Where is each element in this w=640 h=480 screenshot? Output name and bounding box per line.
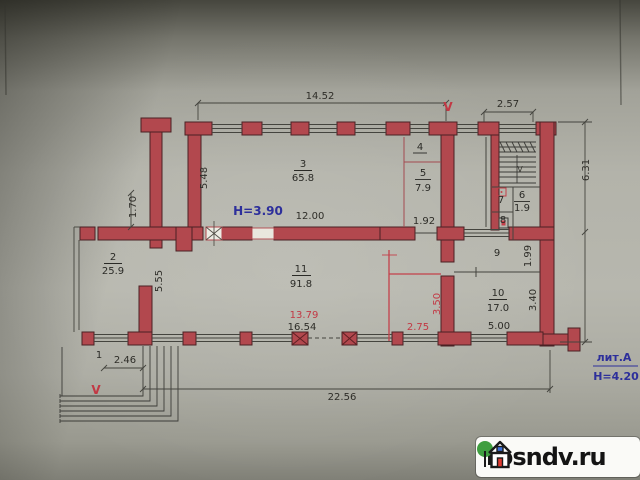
room5-area: 7.9 — [415, 183, 431, 194]
vent-box — [206, 221, 222, 246]
room11-number: 11 — [295, 264, 308, 275]
vent-mark-bottom: V — [91, 383, 101, 397]
room4-number: 4 — [417, 142, 423, 153]
walls-layer — [80, 118, 580, 351]
dim-inner-width: 16.54 — [288, 322, 317, 333]
dim-red-inner-width: 13.79 — [290, 310, 319, 321]
dim-porch-width: 2.46 — [114, 355, 136, 366]
dim-right-side: 6.31 — [581, 159, 592, 181]
room6-area: 1.9 — [514, 203, 530, 214]
room9-number: 9 — [494, 248, 500, 259]
room11-area: 91.8 — [290, 279, 312, 290]
ceiling-height-main: H=3.90 — [233, 204, 283, 218]
staircase — [499, 142, 536, 183]
dim-room3-height: 5.48 — [199, 167, 210, 189]
room6-number: 6 — [519, 190, 525, 201]
dim-left-offset: 1.70 — [128, 196, 139, 218]
room7-number: 7 — [498, 195, 504, 206]
dim-room5-width: 1.92 — [413, 216, 435, 227]
dimension-lines — [101, 100, 592, 393]
litera-label: лит.А — [597, 351, 632, 364]
wall-opening — [252, 228, 274, 239]
room3-number: 3 — [300, 159, 306, 170]
room1-number: 1 — [96, 350, 102, 361]
dim-stair-top: 2.57 — [497, 99, 519, 110]
vent-marks: V V — [91, 100, 453, 397]
room-label-fraction-lines — [104, 153, 530, 300]
room10-area: 17.0 — [487, 303, 509, 314]
room2-number: 2 — [110, 252, 116, 263]
stair-direction-mark: V — [517, 165, 523, 174]
dim-room9-height: 1.99 — [523, 245, 534, 267]
paper-creases — [5, 0, 621, 105]
dim-top: 14.52 — [306, 91, 335, 102]
dim-red-corridor-height: 3.50 — [432, 293, 443, 315]
dim-room2-height: 5.55 — [154, 270, 165, 292]
dim-room10-width: 5.00 — [488, 321, 510, 332]
room3-area: 65.8 — [292, 173, 314, 184]
room8-number: 8 — [500, 215, 506, 226]
floor-plan-photo: 14.52 2.57 6.31 5.48 1.70 12.00 1.92 5.5… — [0, 0, 640, 480]
ceiling-height-lower: H=4.20 — [593, 370, 639, 383]
dim-room10-height: 3.40 — [528, 289, 539, 311]
watermark-logo: rosndv.ru — [476, 437, 640, 477]
room2-area: 25.9 — [102, 266, 124, 277]
dim-hall-width: 12.00 — [296, 211, 325, 222]
room5-number: 5 — [420, 168, 426, 179]
dim-red-corridor-width: 2.75 — [407, 322, 429, 333]
floor-plan-drawing: 14.52 2.57 6.31 5.48 1.70 12.00 1.92 5.5… — [0, 0, 640, 480]
house-icon — [476, 437, 514, 471]
dim-bottom-total: 22.56 — [328, 392, 357, 403]
vent-mark-top: V — [443, 100, 453, 114]
room10-number: 10 — [492, 288, 505, 299]
